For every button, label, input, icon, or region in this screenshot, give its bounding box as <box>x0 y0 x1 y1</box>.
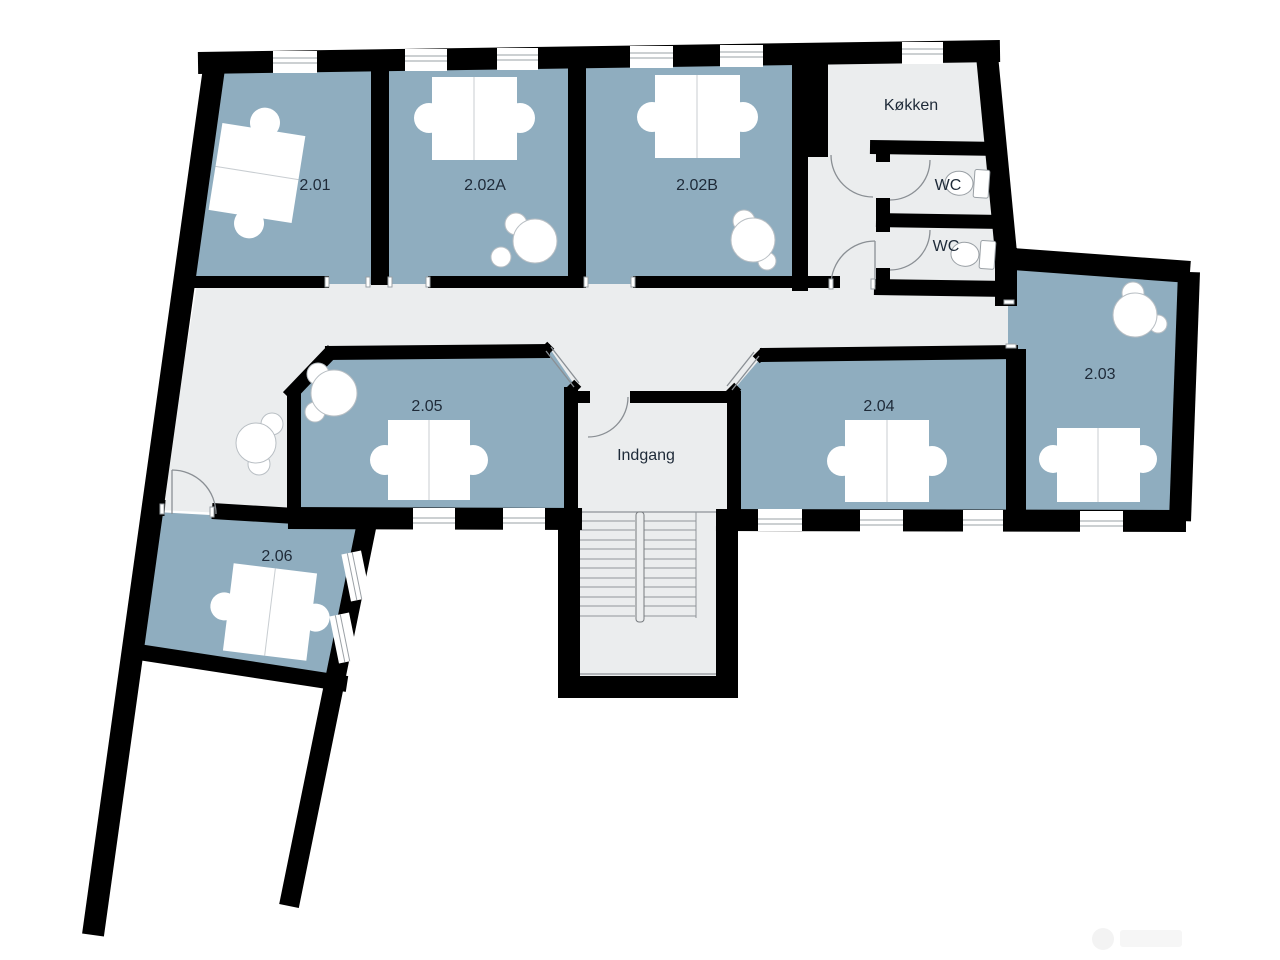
room-label-wc-2: WC <box>933 238 960 255</box>
desk-2-02b <box>637 75 758 158</box>
desk-2-04 <box>827 420 947 502</box>
wall-205-top <box>325 351 550 353</box>
plant-icon <box>513 219 557 263</box>
floor-plan-drawing: 2.01 2.02A 2.02B Køkken WC WC 2.03 2.04 … <box>0 0 1280 960</box>
wall-top-exterior <box>198 51 1000 63</box>
wall-stub-205-door-lower <box>570 384 577 391</box>
toilet-icon <box>979 240 996 269</box>
room-label-2-05: 2.05 <box>411 398 442 415</box>
toilet-icon <box>973 169 990 198</box>
stair-handrail <box>636 512 644 622</box>
round-table-icon <box>236 423 276 463</box>
plant-icon <box>1113 293 1157 337</box>
wall-kitchen-bottom <box>870 147 1002 149</box>
wall-203-top-exterior <box>999 258 1190 272</box>
plant-icon <box>731 218 775 262</box>
room-label-wc-1: WC <box>935 177 962 194</box>
room-label-2-04: 2.04 <box>863 398 894 415</box>
plant-icon <box>311 370 357 416</box>
wall-wc-divider <box>876 220 1004 222</box>
room-label-2-02a: 2.02A <box>464 177 506 194</box>
floor-plan-page: 2.01 2.02A 2.02B Køkken WC WC 2.03 2.04 … <box>0 0 1280 960</box>
wall-wc-bottom <box>874 287 1010 289</box>
room-label-indgang: Indgang <box>617 447 675 464</box>
room-label-2-01: 2.01 <box>299 177 330 194</box>
wall-203-right-exterior <box>1180 272 1189 521</box>
stairwell-floor <box>576 512 722 676</box>
room-label-2-06: 2.06 <box>261 548 292 565</box>
wall-204-top <box>760 352 1018 355</box>
room-label-2-03: 2.03 <box>1084 366 1115 383</box>
watermark <box>1092 928 1182 950</box>
plant-icon <box>491 247 511 267</box>
room-label-kitchen: Køkken <box>884 97 938 114</box>
desk-2-02a <box>414 77 535 160</box>
room-label-2-02b: 2.02B <box>676 177 718 194</box>
